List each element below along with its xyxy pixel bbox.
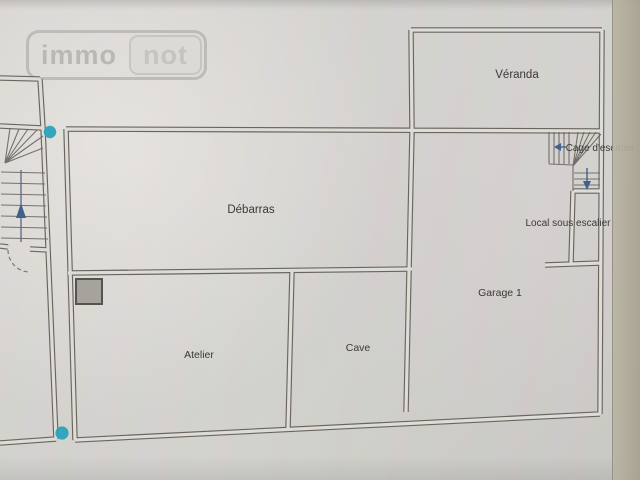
door-swing-arc <box>8 250 30 272</box>
main-staircase-treads <box>549 132 601 191</box>
floorplan-photo: immo not Véranda <box>0 0 640 480</box>
walls-outline <box>0 30 602 443</box>
room-label-debarras: Débarras <box>227 204 275 216</box>
pillar-block <box>76 279 102 304</box>
walls-inner-fill <box>0 30 602 443</box>
room-label-atelier: Atelier <box>184 349 214 361</box>
marker-dot-top <box>44 126 56 138</box>
room-label-local-sous-escalier: Local sous escalier <box>525 218 611 229</box>
floorplan-drawing: Véranda Débarras Cage d'escalier Local s… <box>0 0 640 480</box>
room-label-cave: Cave <box>346 342 371 354</box>
room-label-veranda: Véranda <box>495 69 539 81</box>
screen-edge-shadow <box>612 0 640 480</box>
marker-dot-bottom <box>55 426 68 439</box>
room-label-garage-1: Garage 1 <box>478 287 522 299</box>
